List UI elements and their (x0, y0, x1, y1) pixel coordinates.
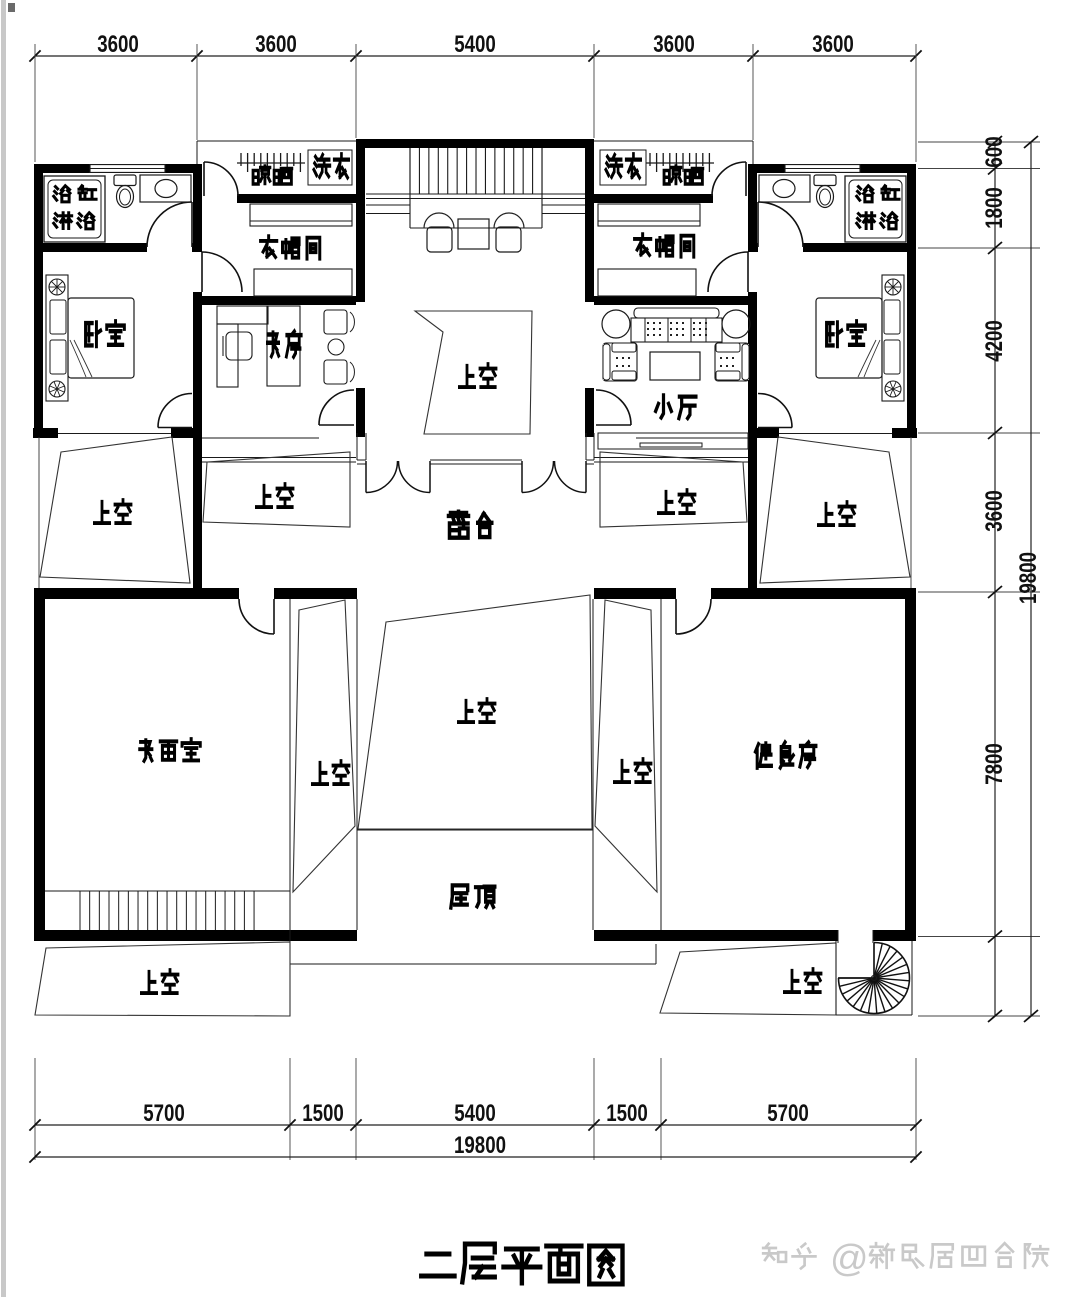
svg-text:5700: 5700 (143, 1100, 185, 1127)
svg-text:3600: 3600 (97, 31, 139, 58)
svg-text:19800: 19800 (454, 1132, 506, 1159)
svg-text:5700: 5700 (767, 1100, 809, 1127)
svg-text:3600: 3600 (981, 490, 1008, 532)
svg-text:5400: 5400 (454, 1100, 496, 1127)
svg-text:1500: 1500 (606, 1100, 648, 1127)
svg-text:600: 600 (981, 136, 1008, 167)
svg-text:7800: 7800 (981, 743, 1008, 785)
svg-text:3600: 3600 (653, 31, 695, 58)
svg-text:4200: 4200 (981, 320, 1008, 362)
svg-text:19800: 19800 (1015, 552, 1042, 604)
svg-text:1500: 1500 (302, 1100, 344, 1127)
svg-text:5400: 5400 (454, 31, 496, 58)
svg-text:1800: 1800 (981, 187, 1008, 229)
svg-text:@: @ (830, 1238, 869, 1280)
svg-text:3600: 3600 (255, 31, 297, 58)
svg-text:3600: 3600 (812, 31, 854, 58)
